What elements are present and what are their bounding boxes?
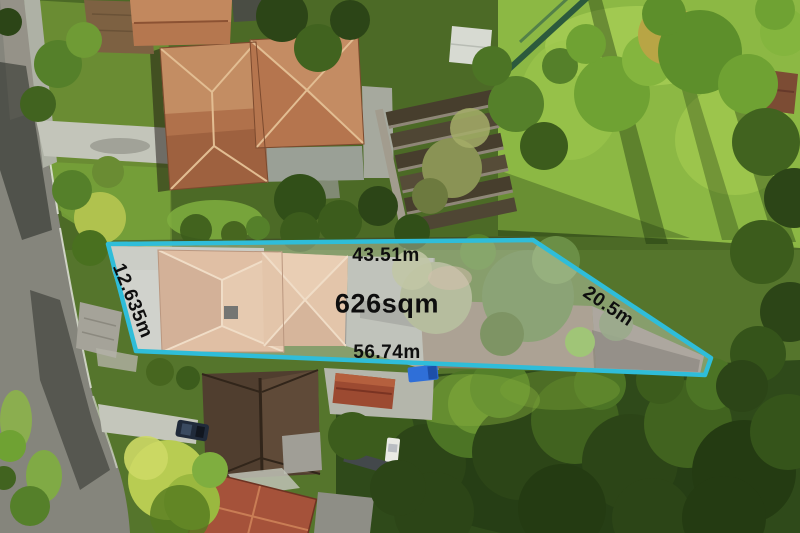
aerial-property-photo: 43.51m 626sqm 56.74m 12.635m 20.5m <box>0 0 800 533</box>
blue-ute <box>407 364 438 382</box>
red-shed-roof <box>332 373 395 409</box>
lot-area-label: 626sqm <box>335 289 439 320</box>
white-car <box>385 437 400 462</box>
top-edge-length-label: 43.51m <box>352 245 419 267</box>
bottom-edge-length-label: 56.74m <box>353 342 420 364</box>
